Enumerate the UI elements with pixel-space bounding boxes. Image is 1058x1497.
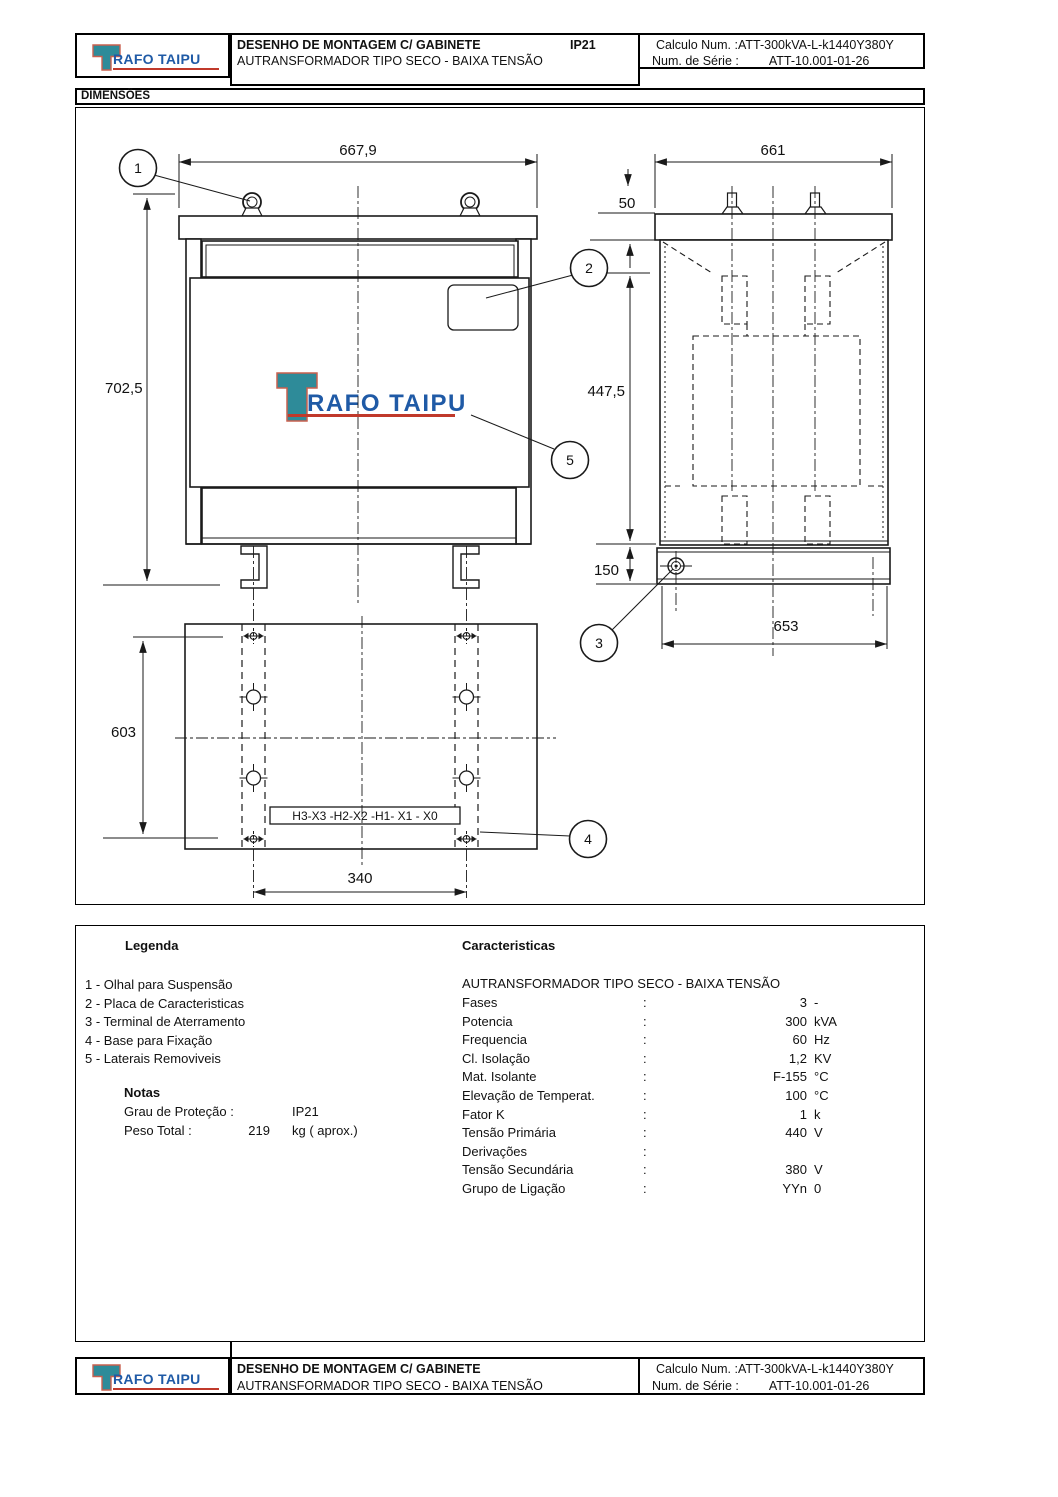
char-label: Cl. Isolação — [462, 1051, 530, 1066]
char-colon: : — [643, 1107, 647, 1122]
calc-number-row: Calculo Num. :ATT-300kVA-L-k1440Y380Y — [656, 1362, 894, 1376]
balloon-4-number: 4 — [584, 831, 592, 847]
characteristic-row: Grupo de Ligação:YYn0 — [462, 1181, 892, 1199]
char-value: 380 — [712, 1162, 807, 1177]
balloon-3: 3 — [581, 625, 618, 662]
dim-base-band-height: 150 — [594, 562, 619, 579]
characteristics-title: Caracteristicas — [462, 938, 555, 953]
serial-number-row: Num. de Série :ATT-10.001-01-26 — [652, 54, 869, 68]
balloon-5-number: 5 — [566, 452, 574, 468]
note-label: Peso Total : — [124, 1123, 192, 1138]
terminal-designations: H3-X3 -H2-X2 -H1- X1 - X0 — [292, 809, 438, 823]
side-lid — [655, 214, 892, 240]
legend-item: 3 - Terminal de Aterramento — [85, 1013, 245, 1032]
char-value: 1 — [712, 1107, 807, 1122]
footer-logo-cell: RAFO TAIPU — [75, 1357, 230, 1395]
bottom-view: H3-X3 -H2-X2 -H1- X1 - X0 — [175, 616, 556, 898]
char-unit: V — [814, 1125, 823, 1140]
char-value: 3 — [712, 995, 807, 1010]
char-label: Potencia — [462, 1014, 513, 1029]
logo-text: RAFO TAIPU — [113, 1371, 201, 1387]
serial-number-value: ATT-10.001-01-26 — [769, 54, 870, 68]
dim-base-length: 603 — [111, 724, 136, 741]
note-unit: IP21 — [292, 1104, 319, 1119]
char-colon: : — [643, 1144, 647, 1159]
char-colon: : — [643, 1181, 647, 1196]
note-row: Peso Total : 219 kg ( aprox.) — [124, 1123, 424, 1141]
calc-number-value: ATT-300kVA-L-k1440Y380Y — [738, 38, 894, 52]
characteristic-row: Frequencia:60Hz — [462, 1032, 892, 1050]
legend-item: 1 - Olhal para Suspensão — [85, 976, 245, 995]
legend-item: 4 - Base para Fixação — [85, 1032, 245, 1051]
characteristic-row: Fases:3- — [462, 995, 892, 1013]
legend-list: 1 - Olhal para Suspensão 2 - Placa de Ca… — [85, 976, 245, 1069]
char-unit: - — [814, 995, 818, 1010]
dim-front-height: 702,5 — [105, 380, 143, 397]
serial-number-value: ATT-10.001-01-26 — [769, 1379, 870, 1393]
notes-title: Notas — [124, 1085, 160, 1100]
balloon-1-number: 1 — [134, 160, 142, 176]
characteristic-row: Tensão Primária:440V — [462, 1125, 892, 1143]
drawing-title: DESENHO DE MONTAGEM C/ GABINETE — [237, 1362, 481, 1376]
header-title-cell: DESENHO DE MONTAGEM C/ GABINETE IP21 AUT… — [230, 33, 640, 69]
char-value: F-155 — [712, 1069, 807, 1084]
drawing-frame: RAFO TAIPU 667,9 — [75, 107, 925, 905]
calc-number-row: Calculo Num. :ATT-300kVA-L-k1440Y380Y — [656, 38, 894, 52]
calc-number-label: Calculo Num. : — [656, 38, 738, 52]
char-label: Fases — [462, 995, 497, 1010]
note-label: Grau de Proteção : — [124, 1104, 234, 1119]
characteristic-row: Mat. Isolante:F-155°C — [462, 1069, 892, 1087]
serial-number-row: Num. de Série :ATT-10.001-01-26 — [652, 1379, 869, 1393]
stud-left — [722, 193, 743, 214]
characteristic-row: Derivações: — [462, 1144, 892, 1162]
lower-band — [202, 488, 516, 544]
drawing-sheet: RAFO TAIPU DESENHO DE MONTAGEM C/ GABINE… — [0, 0, 1058, 1497]
characteristic-row: Potencia:300kVA — [462, 1014, 892, 1032]
char-value: 300 — [712, 1014, 807, 1029]
legend-item: 5 - Laterais Removiveis — [85, 1050, 245, 1069]
characteristic-row: Tensão Secundária:380V — [462, 1162, 892, 1180]
drawing-logo-text: RAFO TAIPU — [307, 390, 467, 417]
section-header-label: DIMENSÕES — [81, 90, 150, 102]
char-colon: : — [643, 1162, 647, 1177]
char-unit: KV — [814, 1051, 831, 1066]
char-value: 1,2 — [712, 1051, 807, 1066]
char-colon: : — [643, 1069, 647, 1084]
serial-number-label: Num. de Série : — [652, 1379, 739, 1393]
char-label: Tensão Primária — [462, 1125, 556, 1140]
char-label: Grupo de Ligação — [462, 1181, 565, 1196]
char-colon: : — [643, 1051, 647, 1066]
char-unit: °C — [814, 1069, 829, 1084]
drawing-title: DESENHO DE MONTAGEM C/ GABINETE — [237, 38, 481, 52]
side-view — [655, 186, 892, 656]
front-view: RAFO TAIPU — [179, 186, 537, 624]
characteristic-row: Fator K:1k — [462, 1107, 892, 1125]
dim-base-width: 653 — [773, 618, 798, 635]
serial-number-label: Num. de Série : — [652, 54, 739, 68]
char-value: 60 — [712, 1032, 807, 1047]
logo-underline — [113, 1388, 219, 1390]
lifting-eye-right — [460, 193, 480, 216]
nameplate — [448, 285, 518, 330]
section-header-dimensions: DIMENSÕES — [75, 88, 925, 105]
dim-side-width: 661 — [760, 142, 785, 159]
char-value: 100 — [712, 1088, 807, 1103]
footer-join-line — [230, 1342, 232, 1357]
balloon-1: 1 — [120, 150, 157, 187]
dim-body-height: 447,5 — [587, 383, 625, 400]
char-unit: 0 — [814, 1181, 821, 1196]
footer-numbers-cell: Calculo Num. :ATT-300kVA-L-k1440Y380Y Nu… — [638, 1357, 925, 1395]
char-label: Elevação de Temperat. — [462, 1088, 595, 1103]
char-unit: V — [814, 1162, 823, 1177]
lifting-eye-left — [242, 193, 262, 216]
calc-number-value: ATT-300kVA-L-k1440Y380Y — [738, 1362, 894, 1376]
note-unit: kg ( aprox.) — [292, 1123, 358, 1138]
balloon-5: 5 — [552, 442, 589, 479]
char-label: Fator K — [462, 1107, 505, 1122]
char-unit: Hz — [814, 1032, 830, 1047]
trafo-taipu-logo: RAFO TAIPU — [92, 1364, 226, 1398]
ip-rating: IP21 — [570, 38, 596, 52]
legend-title: Legenda — [125, 938, 178, 953]
stud-right — [805, 193, 826, 214]
char-value: YYn — [712, 1181, 807, 1196]
characteristics-subtitle: AUTRANSFORMADOR TIPO SECO - BAIXA TENSÃO — [462, 976, 780, 991]
note-row: Grau de Proteção : IP21 — [124, 1104, 424, 1122]
foot-left — [241, 546, 267, 588]
dim-lid-height: 50 — [619, 195, 636, 212]
char-label: Derivações — [462, 1144, 527, 1159]
characteristic-row: Elevação de Temperat.:100°C — [462, 1088, 892, 1106]
dim-front-width: 667,9 — [339, 142, 377, 159]
header-logo-cell: RAFO TAIPU — [75, 33, 230, 78]
balloon-3-number: 3 — [595, 635, 603, 651]
char-colon: : — [643, 1125, 647, 1140]
top-rim — [202, 241, 518, 277]
calc-number-label: Calculo Num. : — [656, 1362, 738, 1376]
balloon-2-number: 2 — [585, 260, 593, 276]
char-unit: kVA — [814, 1014, 837, 1029]
legend-item: 2 - Placa de Caracteristicas — [85, 995, 245, 1014]
char-label: Mat. Isolante — [462, 1069, 536, 1084]
footer-title-cell: DESENHO DE MONTAGEM C/ GABINETE AUTRANSF… — [230, 1357, 640, 1395]
char-label: Frequencia — [462, 1032, 527, 1047]
char-colon: : — [643, 1014, 647, 1029]
foot-right — [453, 546, 479, 588]
logo-text: RAFO TAIPU — [113, 51, 201, 67]
drawing-subtitle: AUTRANSFORMADOR TIPO SECO - BAIXA TENSÃO — [237, 1379, 543, 1393]
technical-drawing: RAFO TAIPU 667,9 — [76, 108, 922, 902]
note-value: 219 — [214, 1123, 270, 1138]
header-numbers-cell: Calculo Num. :ATT-300kVA-L-k1440Y380Y Nu… — [638, 33, 925, 69]
side-body — [660, 240, 888, 545]
balloon-4: 4 — [570, 821, 607, 858]
char-unit: k — [814, 1107, 821, 1122]
dim-hole-span: 340 — [347, 870, 372, 887]
drawing-subtitle: AUTRANSFORMADOR TIPO SECO - BAIXA TENSÃO — [237, 54, 543, 68]
trafo-taipu-logo: RAFO TAIPU — [92, 44, 226, 78]
header-empty-strip — [230, 67, 640, 86]
char-colon: : — [643, 995, 647, 1010]
drawing-logo-underline — [288, 414, 455, 417]
char-value: 440 — [712, 1125, 807, 1140]
char-colon: : — [643, 1032, 647, 1047]
logo-underline — [113, 68, 219, 70]
characteristic-row: Cl. Isolação:1,2KV — [462, 1051, 892, 1069]
char-unit: °C — [814, 1088, 829, 1103]
char-label: Tensão Secundária — [462, 1162, 573, 1177]
char-colon: : — [643, 1088, 647, 1103]
balloon-2: 2 — [571, 250, 608, 287]
